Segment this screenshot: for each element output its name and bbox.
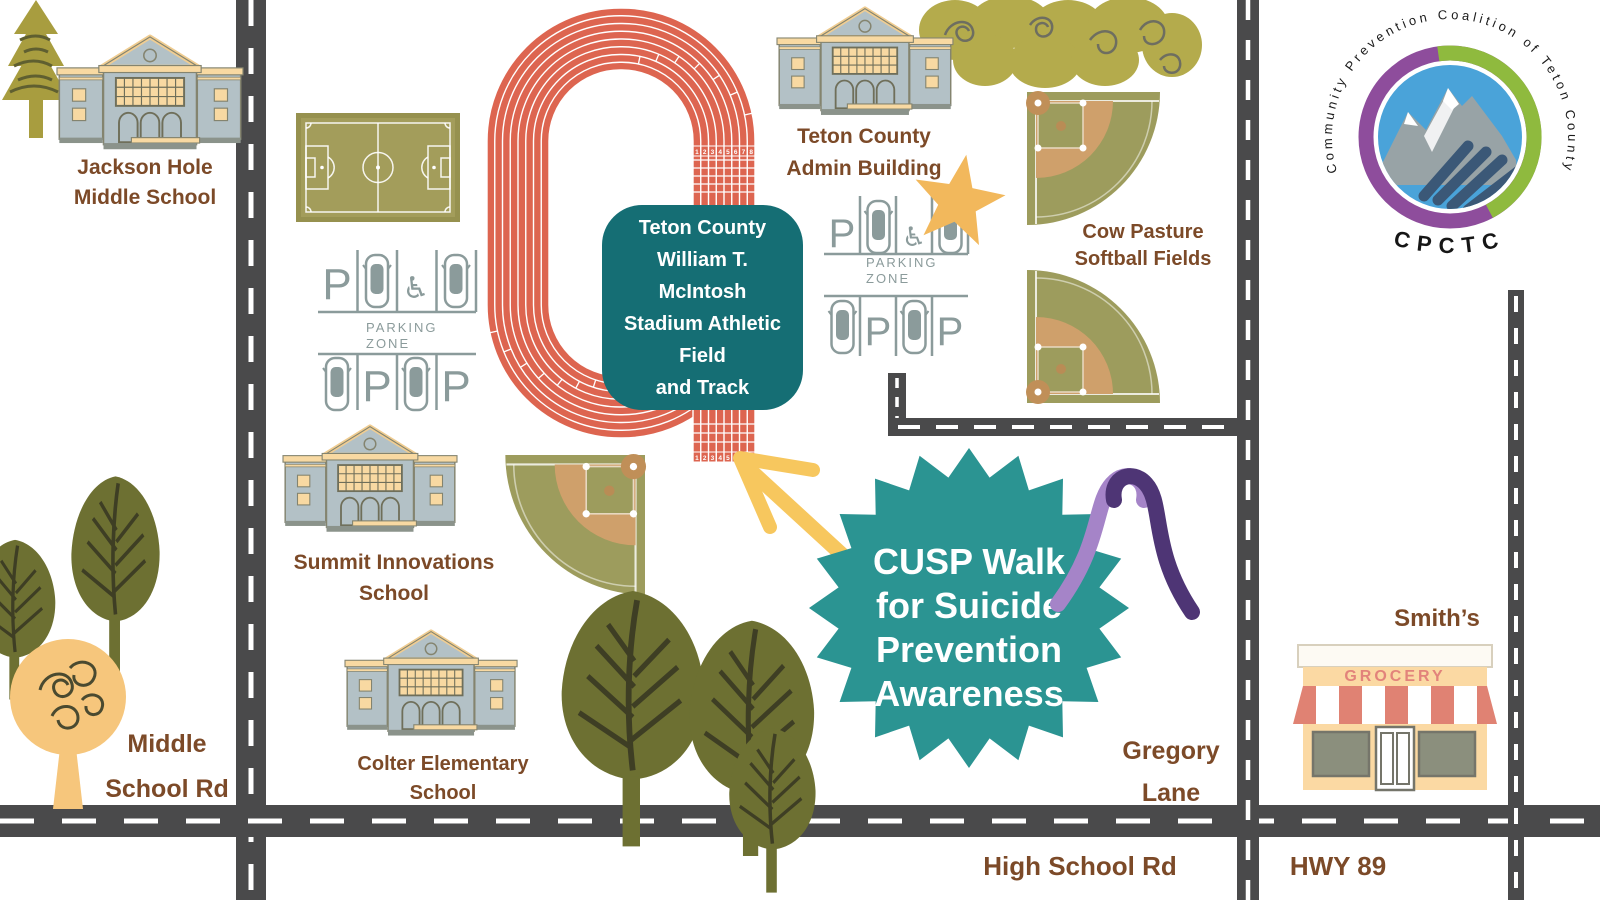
softball-field-south bbox=[1026, 270, 1160, 404]
car-icon bbox=[402, 358, 430, 410]
label-middle-school-rd: Middle School Rd bbox=[105, 722, 229, 812]
parking-p: P bbox=[829, 212, 856, 256]
label-line: High School Rd bbox=[983, 851, 1177, 882]
svg-text:1: 1 bbox=[695, 455, 699, 462]
grocery-store-building: GROCERY bbox=[1290, 645, 1500, 790]
svg-text:4: 4 bbox=[718, 149, 722, 156]
parking-p: P bbox=[322, 260, 351, 309]
handicap-icon: ♿ bbox=[902, 222, 926, 253]
logo-acronym: CPCTC bbox=[1392, 226, 1509, 258]
label-line: School bbox=[294, 578, 495, 609]
label-high-school-rd: High School Rd bbox=[983, 851, 1177, 882]
label-summit-innovations: Summit Innovations School bbox=[294, 547, 495, 609]
label-line: Admin Building bbox=[786, 153, 941, 185]
parking-p: P bbox=[441, 362, 470, 411]
grocery-sign-text: GROCERY bbox=[1344, 668, 1445, 685]
label-line: Middle School bbox=[74, 183, 216, 213]
svg-text:5: 5 bbox=[726, 455, 730, 462]
cpctc-logo: Community Prevention Coalition of Teton … bbox=[1280, 0, 1600, 275]
svg-text:3: 3 bbox=[711, 455, 715, 462]
svg-text:5: 5 bbox=[726, 149, 730, 156]
label-jackson-hole-middle-school: Jackson Hole Middle School bbox=[74, 153, 216, 213]
svg-text:3: 3 bbox=[711, 149, 715, 156]
stadium-label-line: Stadium Athletic bbox=[624, 308, 781, 340]
parking-zone-label: ZONE bbox=[866, 271, 910, 286]
stadium-label-line: William T. bbox=[657, 244, 748, 276]
parking-p: P bbox=[865, 310, 892, 354]
label-line: School Rd bbox=[105, 767, 229, 812]
svg-text:7: 7 bbox=[742, 149, 746, 156]
soccer-field bbox=[296, 113, 460, 222]
store-awning bbox=[1290, 686, 1500, 724]
awareness-ribbon-icon bbox=[1020, 452, 1220, 627]
label-line: Softball Fields bbox=[1075, 246, 1212, 273]
svg-text:6: 6 bbox=[734, 149, 738, 156]
label-line: HWY 89 bbox=[1290, 851, 1386, 882]
car-icon bbox=[363, 255, 391, 307]
stadium-label-line: McIntosh bbox=[659, 276, 747, 308]
label-teton-county-admin: Teton County Admin Building bbox=[786, 121, 941, 185]
parking-zone-label: ZONE bbox=[366, 336, 410, 351]
label-line: Gregory bbox=[1122, 730, 1219, 772]
label-line: Smith’s bbox=[1394, 605, 1480, 633]
colter-elementary-school-building bbox=[345, 632, 517, 736]
svg-text:1: 1 bbox=[695, 149, 699, 156]
label-smiths: Smith’s bbox=[1394, 605, 1480, 633]
event-badge-line: Awareness bbox=[874, 672, 1063, 716]
svg-text:CPCTC: CPCTC bbox=[1392, 226, 1509, 258]
label-line: Colter Elementary bbox=[357, 750, 528, 779]
label-colter-elementary: Colter Elementary School bbox=[357, 750, 528, 808]
label-line: Cow Pasture bbox=[1075, 219, 1212, 246]
svg-text:2: 2 bbox=[703, 455, 707, 462]
car-icon bbox=[442, 255, 470, 307]
stadium-label-line: Field bbox=[679, 340, 726, 372]
car-icon bbox=[901, 301, 929, 353]
svg-text:4: 4 bbox=[718, 455, 722, 462]
svg-text:8: 8 bbox=[749, 149, 753, 156]
bush-cluster-icon bbox=[919, 0, 1202, 88]
stadium-label-box: Teton County William T. McIntosh Stadium… bbox=[602, 205, 803, 410]
label-line: Summit Innovations bbox=[294, 547, 495, 578]
stadium-label-line: and Track bbox=[656, 372, 749, 404]
label-line: Lane bbox=[1122, 772, 1219, 814]
label-line: School bbox=[357, 779, 528, 808]
stadium-label-line: Teton County bbox=[639, 212, 766, 244]
parking-zone-label: PARKING bbox=[866, 255, 938, 270]
label-line: Teton County bbox=[786, 121, 941, 153]
car-icon bbox=[865, 201, 893, 253]
label-hwy-89: HWY 89 bbox=[1290, 851, 1386, 882]
parking-zone-label: PARKING bbox=[366, 320, 438, 335]
label-cow-pasture: Cow Pasture Softball Fields bbox=[1075, 219, 1212, 273]
event-map: 12345678 12345678 P ♿ PARKING ZONE bbox=[0, 0, 1600, 900]
svg-text:2: 2 bbox=[703, 149, 707, 156]
parking-p: P bbox=[362, 362, 391, 411]
label-line: Middle bbox=[105, 722, 229, 767]
parking-zone-west: P ♿ PARKING ZONE P P bbox=[318, 250, 476, 411]
label-line: Jackson Hole bbox=[74, 153, 216, 183]
softball-field-north bbox=[1026, 91, 1160, 225]
event-badge-line: Prevention bbox=[876, 628, 1062, 672]
label-gregory-lane: Gregory Lane bbox=[1122, 730, 1219, 814]
car-icon bbox=[323, 358, 351, 410]
handicap-icon: ♿ bbox=[403, 271, 430, 306]
stadium-baseball-field bbox=[505, 454, 646, 595]
summit-innovations-school-building bbox=[283, 427, 457, 532]
car-icon bbox=[829, 301, 857, 353]
parking-p: P bbox=[937, 310, 964, 354]
jackson-hole-middle-school-building bbox=[57, 37, 243, 149]
